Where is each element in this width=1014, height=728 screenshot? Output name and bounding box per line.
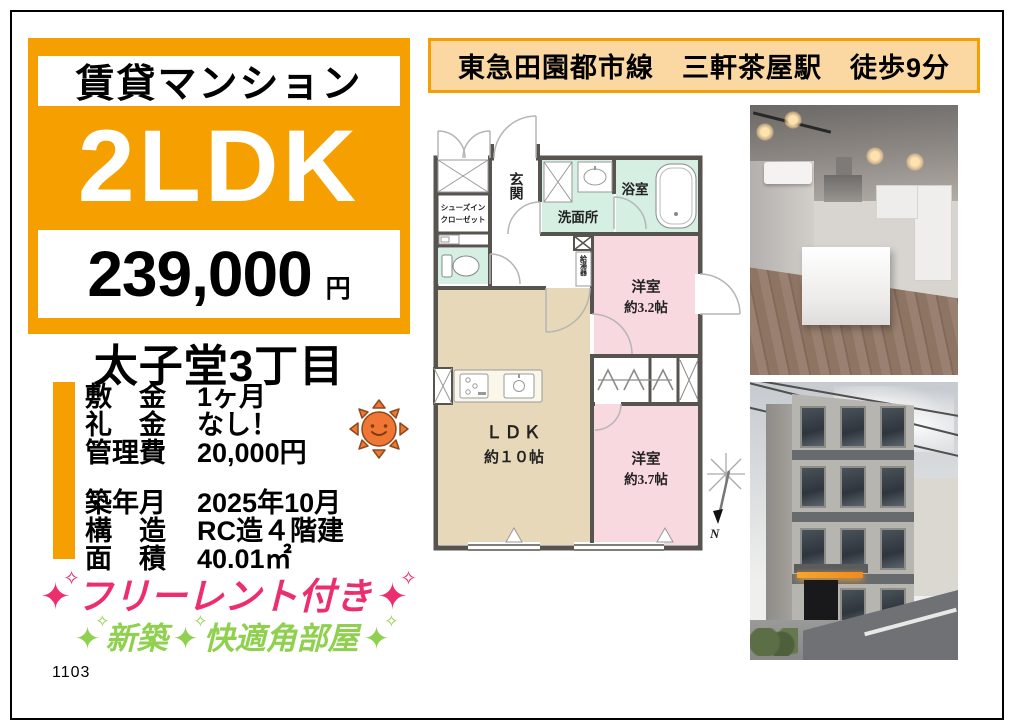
detail-row-key-money: 礼 金なし！ [85, 411, 344, 439]
slogan-new-corner-room: ✦✧新築✦✧快適角部屋✦✧ [30, 613, 434, 658]
toilet-icon [442, 255, 479, 277]
entrance-opening [494, 153, 536, 163]
slogan-free-rent-text: フリーレント付き [76, 576, 372, 617]
flyer-number: 1103 [52, 664, 90, 682]
exterior-photo-entrance-door [804, 580, 838, 624]
exterior-photo-spandrel [792, 512, 914, 522]
washbasin-icon [578, 162, 612, 192]
interior-photo-light [756, 123, 774, 141]
sparkle-icon: ✦✧ [363, 621, 389, 657]
detail-row-structure: 構 造RC造４階建 [85, 517, 344, 545]
rent-price: 239,000 [87, 237, 311, 311]
exterior-photo-window [880, 466, 906, 508]
entrance-closet-x [438, 160, 488, 192]
interior-photo-light [784, 111, 802, 129]
interior-photo-range-hood [824, 175, 862, 202]
meter-box [439, 235, 459, 244]
label-bathroom: 浴室 [622, 181, 650, 197]
flyer-page: 賃貸マンション 2LDK 239,000 円 太子堂3丁目 敷 金1ヶ月 礼 金… [0, 0, 1014, 728]
price-box: 賃貸マンション 2LDK 239,000 円 [28, 38, 410, 334]
exterior-photo-window [800, 406, 826, 448]
interior-photo [750, 105, 958, 375]
property-category: 賃貸マンション [38, 56, 400, 106]
svg-text:N: N [709, 526, 720, 541]
floor-plan: N 玄関 シューズイン クローゼット 洗面所 浴室 給湯器 洋室 約3.2帖 Ｌ… [432, 102, 747, 580]
label-bedroom1-size: 約3.2帖 [624, 299, 668, 315]
label-washroom: 洗面所 [558, 209, 599, 225]
label-bedroom2-name: 洋室 [632, 450, 661, 468]
label-shoes-closet-2: クローゼット [441, 214, 486, 224]
interior-photo-kitchen-island [802, 247, 890, 325]
label-bedroom2-size: 約3.7帖 [624, 471, 668, 487]
balcony-door-opening [695, 274, 705, 314]
exterior-photo-neighbor-house [914, 478, 958, 596]
detail-row-maintenance-fee: 管理費20,000円 [85, 439, 344, 467]
slogan-free-rent: ✦✧フリーレント付き✦✧ [22, 566, 426, 620]
price-strip: 239,000 円 [38, 230, 400, 318]
label-bedroom1-name: 洋室 [632, 278, 661, 296]
label-ldk-size: 約１０帖 [484, 448, 544, 466]
exterior-photo-window [880, 406, 906, 448]
sparkle-icon: ✦✧ [173, 621, 199, 657]
sparkle-icon: ✦✧ [75, 621, 101, 657]
slogan-corner-room-text: 快適角部屋 [203, 621, 358, 656]
exterior-photo [750, 382, 958, 660]
bathtub-icon [656, 164, 696, 228]
station-banner: 東急田園都市線 三軒茶屋駅 徒歩9分 [428, 38, 980, 93]
sun-icon [346, 399, 412, 461]
exterior-photo-building-side [766, 404, 792, 622]
exterior-photo-entrance-light [797, 572, 863, 578]
exterior-photo-spandrel [792, 450, 914, 460]
layout-type: 2LDK [28, 102, 410, 230]
exterior-photo-window [880, 528, 906, 570]
currency-unit: 円 [326, 269, 351, 305]
detail-row-built-date: 築年月2025年10月 [85, 489, 344, 517]
detail-row-deposit: 敷 金1ヶ月 [85, 383, 344, 411]
slogan-new-text: 新築 [106, 621, 168, 656]
kitchen-counter-icon [434, 368, 542, 404]
label-ldk-name: ＬＤＫ [486, 423, 543, 442]
exterior-photo-window [840, 466, 866, 508]
exterior-photo-plants [750, 628, 798, 656]
washing-machine-icon [544, 162, 572, 202]
label-shoes-closet-1: シューズイン [441, 202, 486, 212]
interior-photo-air-conditioner [764, 162, 812, 184]
detail-list: 敷 金1ヶ月 礼 金なし！ 管理費20,000円 築年月2025年10月 構 造… [85, 383, 344, 573]
detail-accent-bar [53, 382, 75, 559]
interior-photo-door [914, 185, 952, 281]
exterior-photo-window [840, 406, 866, 448]
compass-icon: N [707, 453, 745, 541]
exterior-photo-window [800, 466, 826, 508]
interior-photo-downlight [866, 147, 884, 165]
sparkle-icon: ✦✧ [40, 575, 71, 618]
interior-photo-downlight [906, 153, 924, 171]
label-entrance: 玄関 [508, 171, 524, 201]
label-water-heater: 給湯器 [579, 254, 588, 277]
interior-photo-cabinet [876, 185, 918, 219]
